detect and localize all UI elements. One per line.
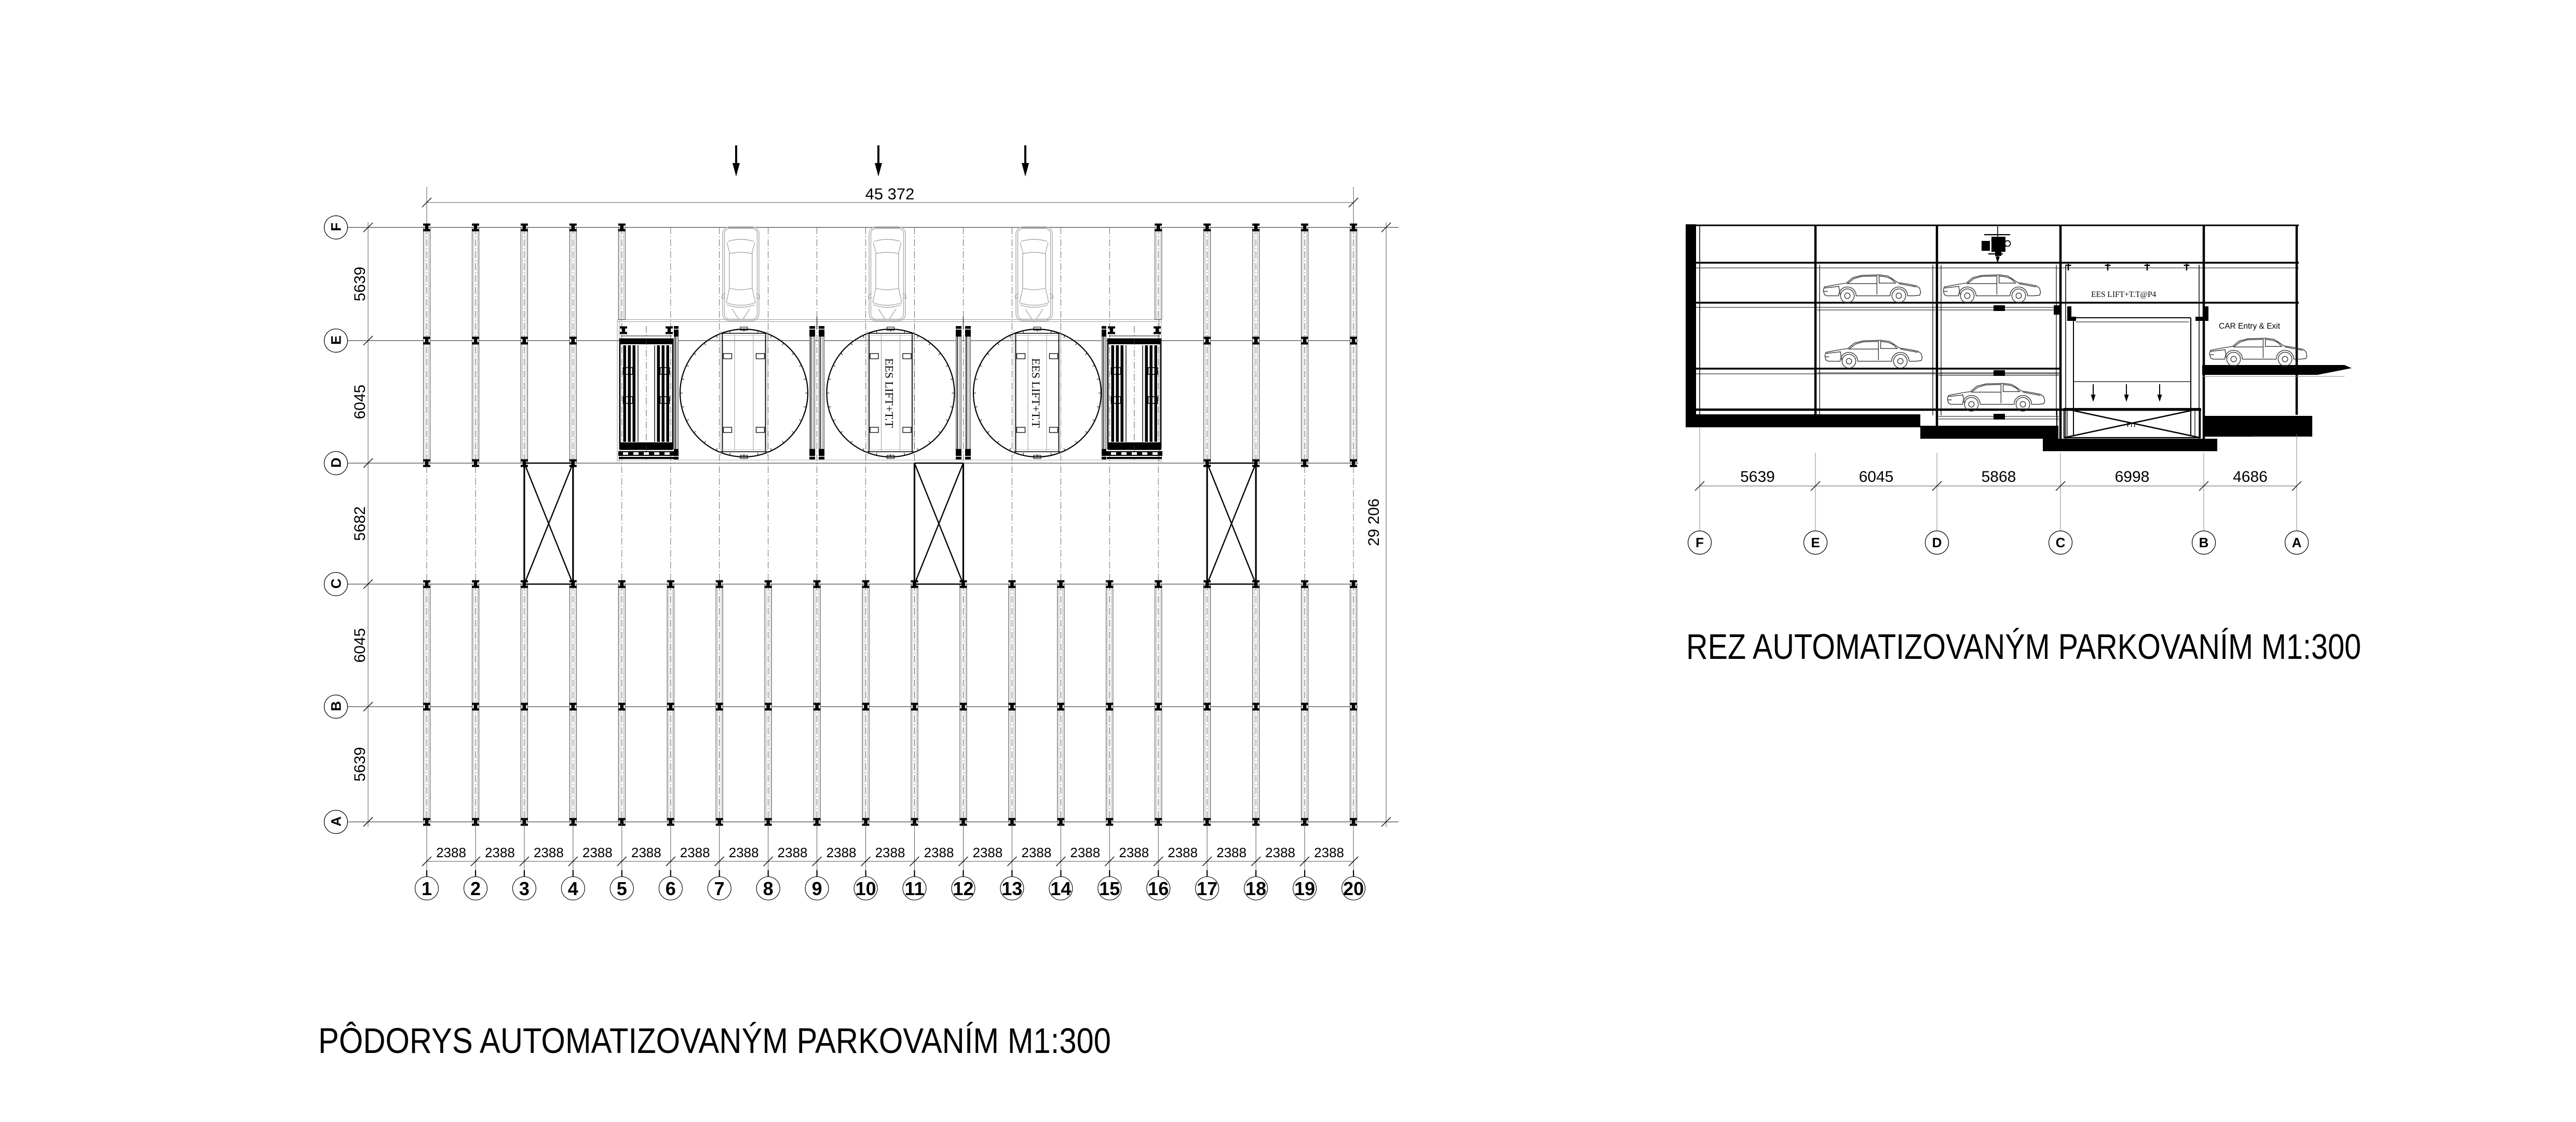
svg-text:10: 10: [856, 878, 876, 899]
svg-text:6: 6: [666, 878, 676, 899]
svg-text:2388: 2388: [534, 845, 564, 860]
svg-text:2388: 2388: [631, 845, 661, 860]
svg-text:4686: 4686: [2233, 468, 2268, 485]
svg-text:6045: 6045: [1859, 468, 1894, 485]
svg-text:5639: 5639: [351, 267, 369, 302]
svg-text:E: E: [1811, 535, 1820, 550]
svg-text:19: 19: [1294, 878, 1315, 899]
svg-text:5682: 5682: [351, 506, 369, 541]
svg-text:4: 4: [568, 878, 578, 899]
svg-text:2388: 2388: [972, 845, 1002, 860]
svg-text:2388: 2388: [729, 845, 759, 860]
svg-text:5639: 5639: [351, 747, 369, 782]
svg-text:5868: 5868: [1982, 468, 2016, 485]
svg-text:EES LIFT+T.T: EES LIFT+T.T: [883, 358, 896, 428]
svg-text:2388: 2388: [680, 845, 710, 860]
svg-text:12: 12: [953, 878, 973, 899]
svg-text:2388: 2388: [1168, 845, 1198, 860]
svg-text:PÔDORYS AUTOMATIZOVANÝM PARKOV: PÔDORYS AUTOMATIZOVANÝM PARKOVANÍM M1:30…: [318, 1021, 1111, 1061]
svg-text:EES LIFT+T.T: EES LIFT+T.T: [1029, 358, 1042, 428]
svg-text:2388: 2388: [875, 845, 905, 860]
svg-text:F: F: [329, 223, 344, 232]
svg-text:2388: 2388: [485, 845, 515, 860]
svg-text:B: B: [2199, 535, 2209, 550]
svg-text:CAR Entry & Exit: CAR Entry & Exit: [2219, 322, 2281, 331]
svg-text:8: 8: [763, 878, 774, 899]
svg-text:2388: 2388: [436, 845, 466, 860]
svg-text:18: 18: [1245, 878, 1266, 899]
svg-text:A: A: [329, 816, 344, 827]
svg-text:29 206: 29 206: [1365, 498, 1382, 546]
svg-text:2: 2: [470, 878, 481, 899]
svg-text:F: F: [1696, 535, 1704, 550]
svg-text:2388: 2388: [1119, 845, 1149, 860]
svg-text:15: 15: [1099, 878, 1120, 899]
svg-text:2388: 2388: [778, 845, 808, 860]
svg-text:45 372: 45 372: [865, 185, 915, 203]
svg-text:7: 7: [714, 878, 725, 899]
svg-text:20: 20: [1343, 878, 1364, 899]
svg-text:2388: 2388: [1314, 845, 1344, 860]
svg-text:14: 14: [1050, 878, 1071, 899]
svg-text:6045: 6045: [351, 385, 369, 420]
svg-text:E: E: [329, 335, 344, 345]
svg-text:6998: 6998: [2115, 468, 2150, 485]
svg-text:REZ AUTOMATIZOVANÝM PARKOVANÍM: REZ AUTOMATIZOVANÝM PARKOVANÍM M1:300: [1686, 627, 2361, 667]
svg-text:2388: 2388: [1265, 845, 1295, 860]
svg-text:2388: 2388: [1070, 845, 1100, 860]
svg-text:PIT: PIT: [2126, 421, 2137, 428]
svg-text:2388: 2388: [1216, 845, 1246, 860]
svg-text:2388: 2388: [582, 845, 613, 860]
svg-text:C: C: [329, 578, 344, 589]
svg-text:16: 16: [1148, 878, 1169, 899]
svg-text:6045: 6045: [351, 628, 369, 663]
svg-text:D: D: [329, 457, 344, 468]
svg-text:1: 1: [422, 878, 432, 899]
svg-text:C: C: [2056, 535, 2066, 550]
svg-text:D: D: [1932, 535, 1942, 550]
svg-text:2388: 2388: [924, 845, 954, 860]
svg-text:B: B: [329, 701, 344, 711]
svg-text:3: 3: [519, 878, 530, 899]
svg-text:A: A: [2292, 535, 2302, 550]
svg-text:EES LIFT+T.T@P4: EES LIFT+T.T@P4: [2091, 290, 2156, 299]
svg-text:11: 11: [904, 878, 924, 899]
svg-text:13: 13: [1001, 878, 1022, 899]
svg-text:9: 9: [812, 878, 822, 899]
svg-text:5: 5: [617, 878, 627, 899]
svg-text:2388: 2388: [1021, 845, 1051, 860]
svg-text:5639: 5639: [1740, 468, 1775, 485]
svg-text:2388: 2388: [826, 845, 857, 860]
svg-text:17: 17: [1197, 878, 1217, 899]
